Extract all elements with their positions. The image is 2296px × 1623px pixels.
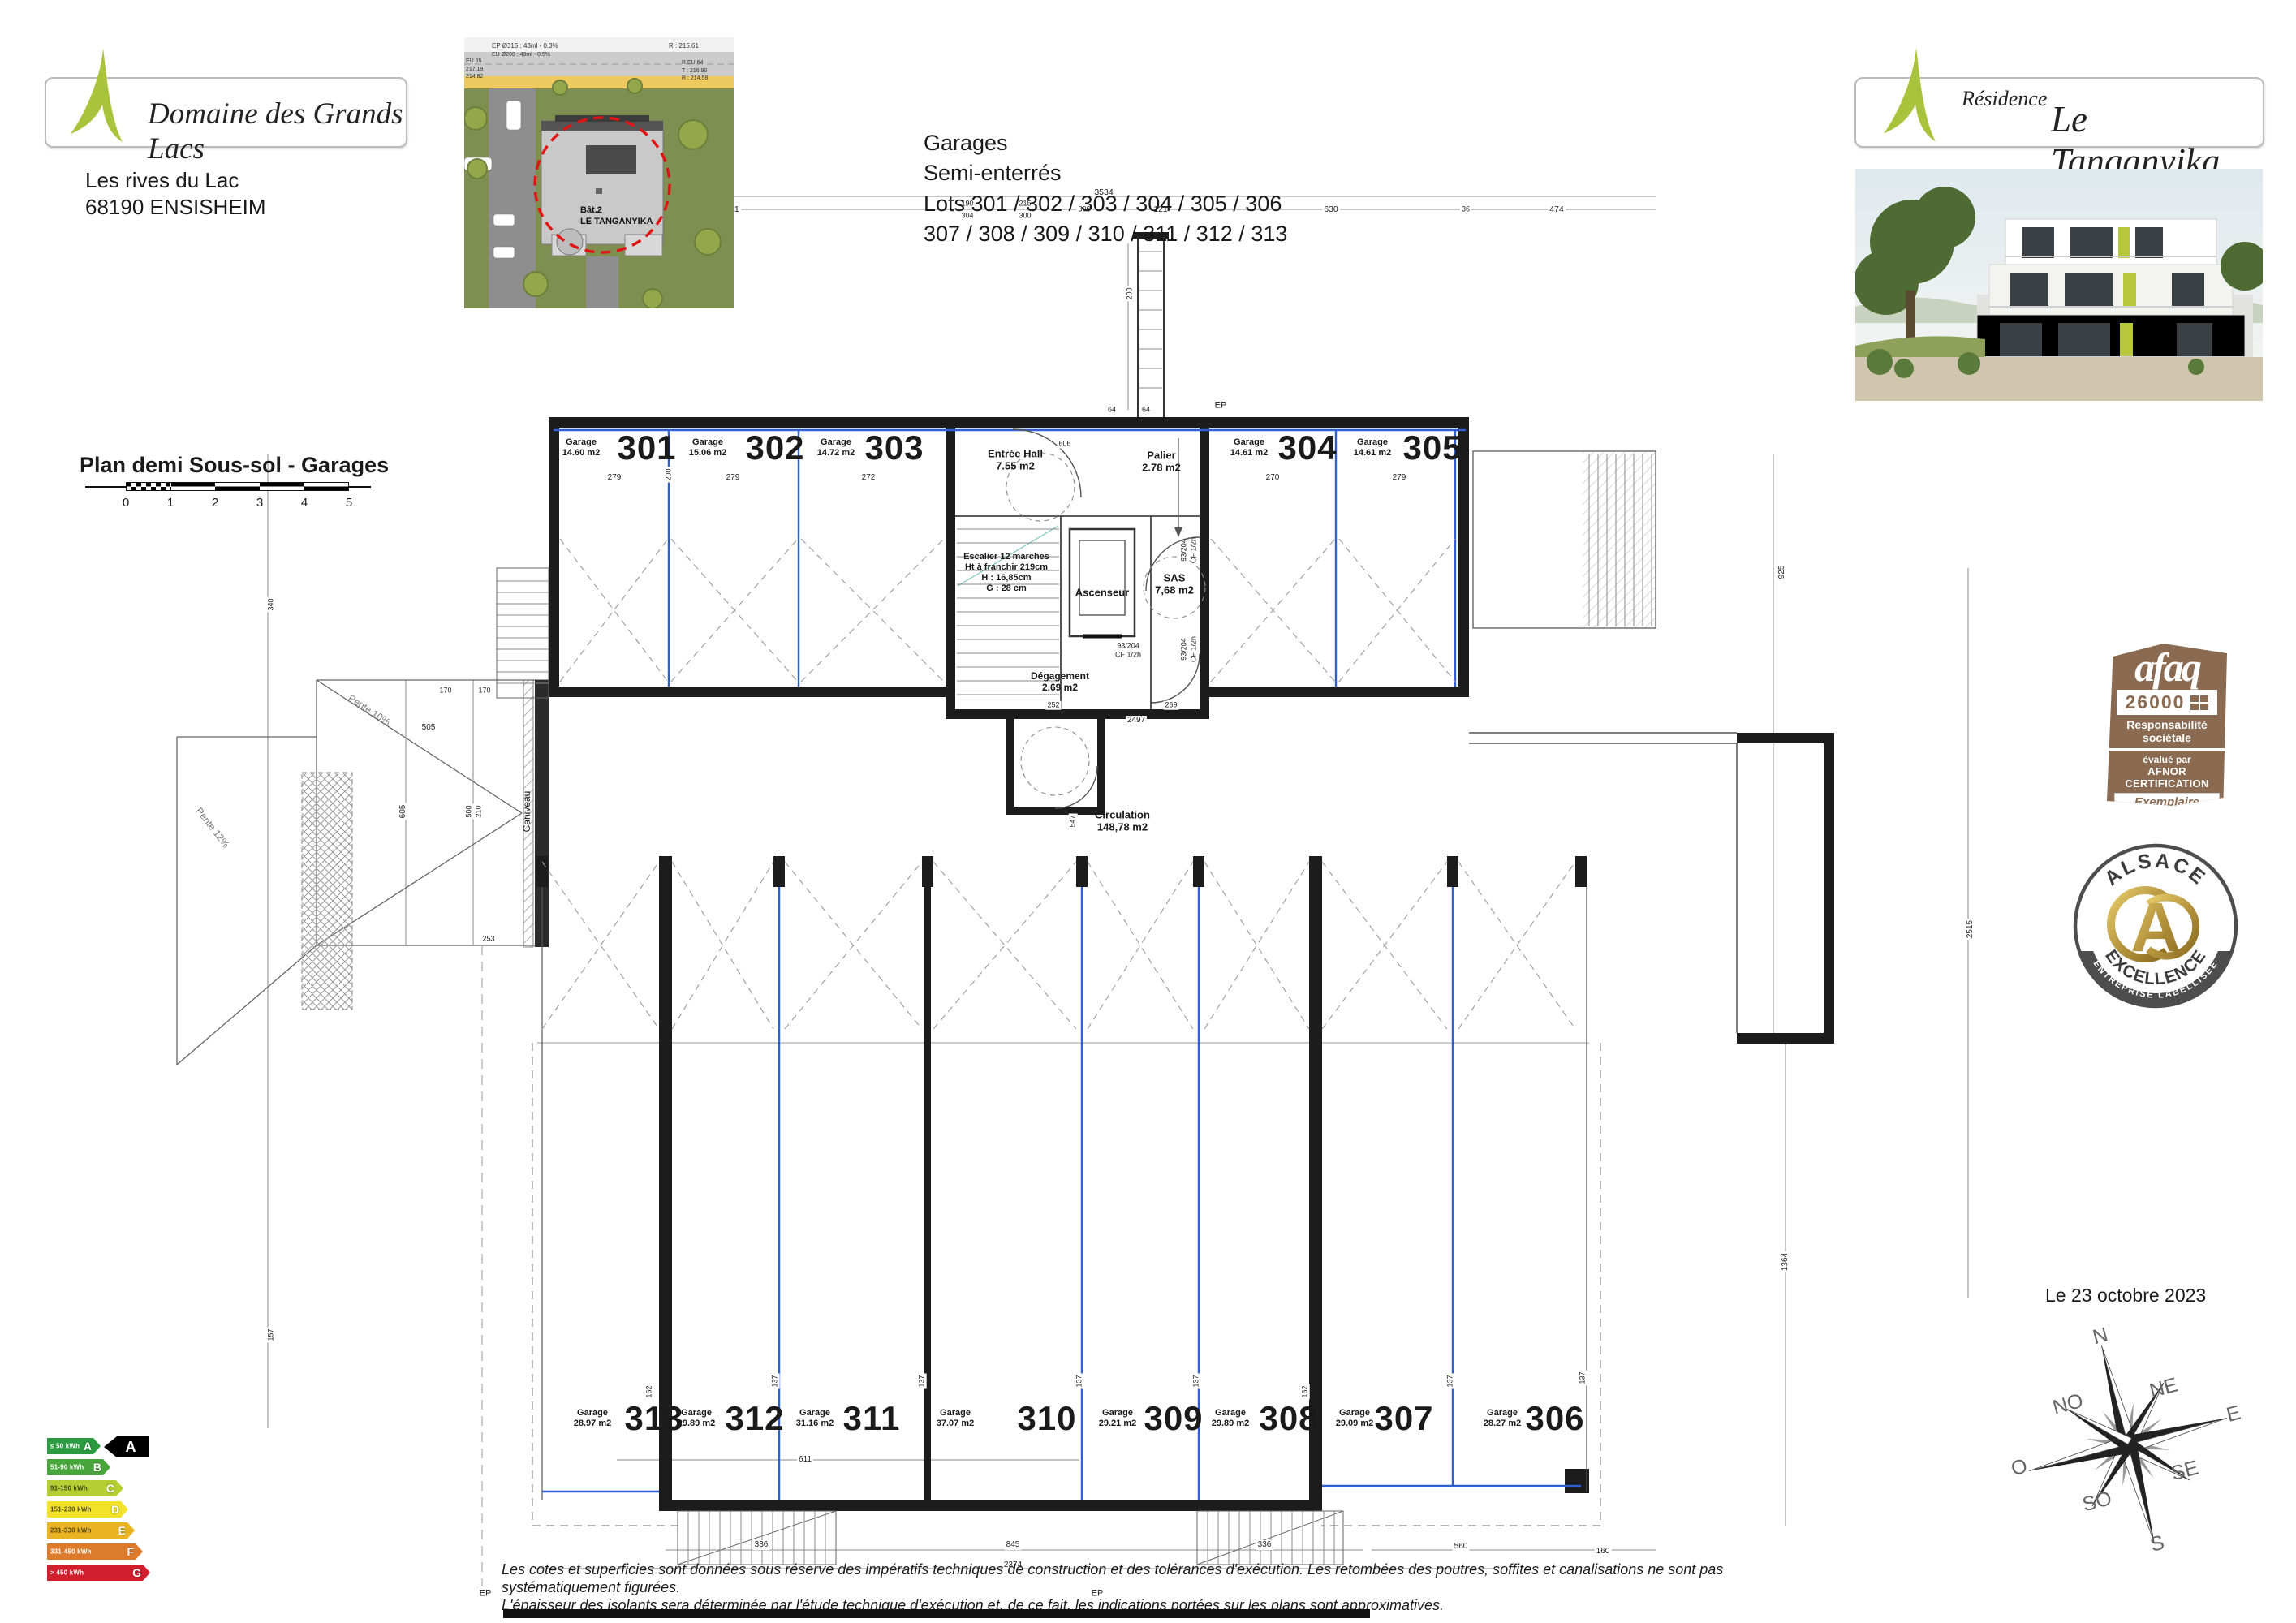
svg-text:R : 215.61: R : 215.61	[669, 42, 699, 50]
svg-text:SO: SO	[2080, 1487, 2114, 1516]
energy-row-B: 51-90 kWhB	[47, 1459, 226, 1475]
title-block-rule	[503, 1609, 1370, 1618]
bottom-dashed-outline	[532, 1043, 1600, 1526]
brand-logo-right: Résidence Le Tanganyika	[1854, 77, 2264, 148]
svg-text:EP Ø315 : 43ml - 0.3%: EP Ø315 : 43ml - 0.3%	[492, 42, 558, 50]
energy-row-C: 91-150 kWhC	[47, 1480, 226, 1496]
window-icon	[2190, 695, 2208, 710]
alsace-excellence-badge: A ALSACE EXCELLENCE ENTREPRISE LABELLISÉ…	[2070, 841, 2241, 1011]
brand-spike-icon	[1882, 45, 1947, 157]
afaq-26000-badge: afaq 26000 Responsabilité sociétale éval…	[2107, 644, 2227, 806]
circulation-right	[1737, 733, 1834, 1044]
alsace-monogram: A	[2130, 889, 2181, 966]
walls-bottom	[536, 856, 1589, 1511]
compass-rose: N NE E SE S SO O NO	[1998, 1315, 2258, 1574]
residence-prefix: Résidence	[1962, 87, 2047, 111]
residence-photo	[1855, 169, 2263, 401]
svg-text:S: S	[2147, 1531, 2166, 1556]
energy-row-G: > 450 kWhG	[47, 1565, 226, 1581]
svg-text:214.82: 214.82	[466, 74, 484, 80]
energy-rating-chart: A ≤ 50 kWhA51-90 kWhB91-150 kWhC151-230 …	[47, 1438, 226, 1586]
svg-text:E: E	[2224, 1401, 2242, 1427]
brand-name-left: Domaine des Grands Lacs	[148, 97, 406, 166]
svg-text:Bât.2: Bât.2	[580, 205, 602, 215]
svg-text:LE TANGANYIKA: LE TANGANYIKA	[580, 217, 653, 226]
brand-logo-left: Domaine des Grands Lacs	[45, 77, 407, 148]
plan-date: Le 23 octobre 2023	[2045, 1285, 2206, 1307]
svg-text:EU 65: EU 65	[466, 58, 482, 64]
scale-bar	[126, 482, 349, 491]
turning-circles	[1006, 453, 1205, 795]
svg-text:217.19: 217.19	[466, 67, 484, 72]
ramp	[177, 680, 549, 1065]
svg-text:N: N	[2091, 1323, 2111, 1349]
site-plan-inset: EP Ø315 : 43ml - 0.3% EU Ø200 : 49ml - 0…	[464, 37, 734, 308]
energy-row-A: ≤ 50 kWhA	[47, 1438, 226, 1454]
plan-title: Plan demi Sous-sol - Garages	[80, 453, 389, 478]
svg-text:R EU 64: R EU 64	[682, 60, 704, 66]
brand-spike-icon	[69, 46, 134, 156]
plan-sheet: { "header":{ "brand_left":{"name":"Domai…	[0, 0, 2296, 1623]
project-address: Les rives du Lac 68190 ENSISHEIM	[85, 167, 266, 220]
blue-lines-bottom	[542, 887, 1581, 1500]
afaq-number: 26000	[2126, 691, 2186, 713]
svg-text:EU Ø200 : 49ml - 0.5%: EU Ø200 : 49ml - 0.5%	[492, 52, 550, 58]
svg-text:O: O	[2009, 1454, 2030, 1480]
dim-lines	[268, 196, 1968, 1569]
energy-row-E: 231-330 kWhE	[47, 1522, 226, 1539]
energy-row-F: 331-450 kWhF	[47, 1543, 226, 1560]
bottom-stair-details	[497, 568, 1343, 1565]
hatched-wall	[302, 773, 352, 1010]
blue-lines-top	[554, 430, 1466, 687]
disclaimer: Les cotes et superficies sont données so…	[502, 1561, 1768, 1615]
sheet-subject: Garages Semi-enterrés Lots 301 / 302 / 3…	[924, 128, 1287, 249]
svg-text:R : 214.58: R : 214.58	[682, 75, 708, 81]
svg-text:T : 216.90: T : 216.90	[682, 68, 708, 74]
svg-text:NO: NO	[2050, 1389, 2085, 1419]
walls-top	[549, 232, 1469, 815]
svg-text:NE: NE	[2147, 1373, 2181, 1402]
garage-door-swings	[542, 539, 1575, 1029]
svg-text:SE: SE	[2169, 1456, 2200, 1485]
entrance-inner	[955, 516, 1200, 709]
energy-row-D: 151-230 kWhD	[47, 1501, 226, 1518]
door-arcs	[1013, 429, 1200, 808]
caniveau-strip	[523, 680, 533, 947]
shaft	[1138, 237, 1164, 417]
